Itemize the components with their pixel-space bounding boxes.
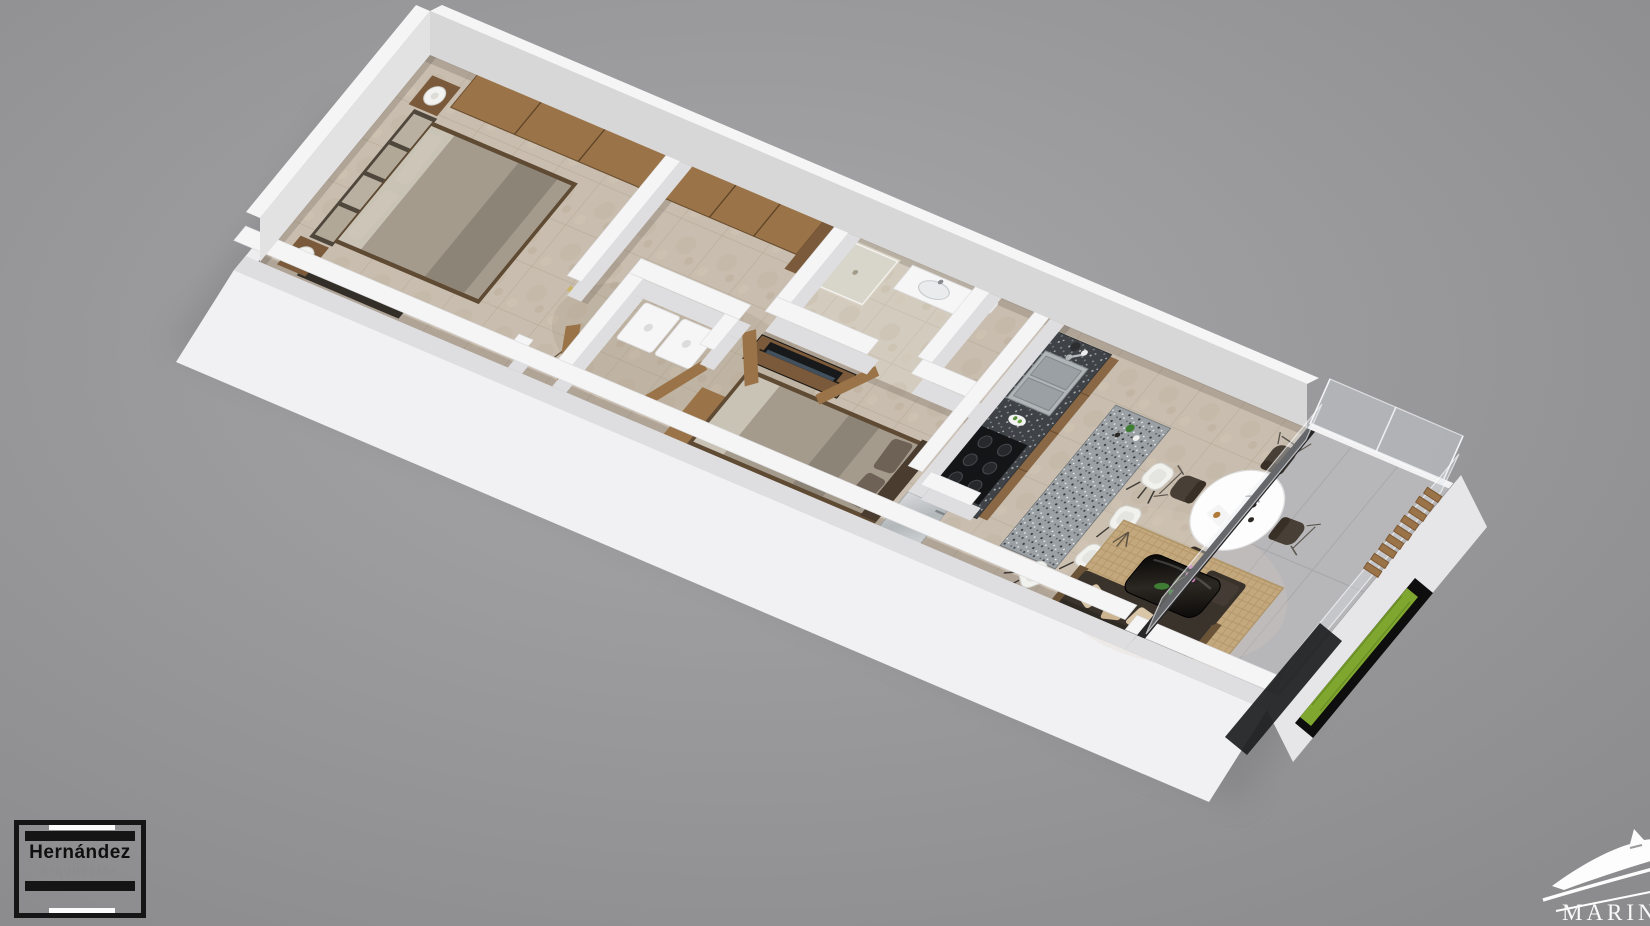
frame-notch: [49, 825, 115, 830]
floorplan-render: MARINA: [0, 0, 1650, 926]
architect-subtitle: arquitectos: [23, 864, 137, 878]
logo-bar: [25, 881, 135, 891]
marina-label: MARINA: [1562, 900, 1650, 925]
frame-notch: [49, 908, 115, 913]
bedroom2-door: [742, 329, 758, 386]
architect-logo: Hernández arquitectos: [14, 820, 146, 918]
architect-name: Hernández: [23, 842, 137, 864]
render-canvas: MARINA Hernández arquitectos: [0, 0, 1650, 926]
logo-bar: [25, 831, 135, 841]
